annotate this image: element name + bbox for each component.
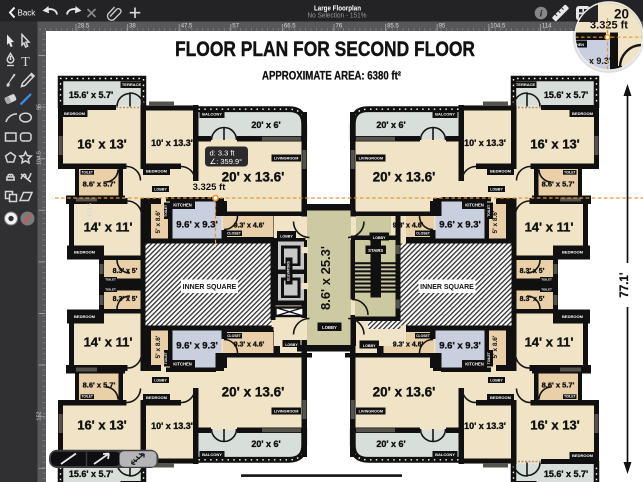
svg-text:5' x 8.6': 5' x 8.6' (492, 210, 499, 233)
svg-text:95: 95 (37, 104, 43, 110)
svg-text:14' x 11': 14' x 11' (525, 335, 574, 350)
svg-text:Large Floorplan: Large Floorplan (314, 4, 361, 13)
svg-text:BEDROOM: BEDROOM (572, 453, 594, 458)
svg-text:LOBBY: LOBBY (280, 234, 293, 238)
svg-text:15.6' x 5.7': 15.6' x 5.7' (69, 469, 113, 479)
svg-text:LOBBY: LOBBY (363, 344, 376, 348)
svg-text:123.5: 123.5 (88, 203, 94, 217)
svg-text:BALCONY: BALCONY (202, 112, 222, 117)
svg-text:5' x 8.6': 5' x 8.6' (155, 335, 162, 358)
svg-text:76: 76 (336, 24, 343, 30)
svg-text:TOILET: TOILET (82, 171, 93, 175)
svg-text:47.5: 47.5 (181, 24, 193, 30)
svg-text:TOILET: TOILET (105, 278, 116, 282)
svg-text:28.5: 28.5 (78, 24, 90, 30)
svg-text:BALCONY: BALCONY (202, 452, 222, 457)
svg-text:BEDROOM: BEDROOM (562, 314, 584, 319)
svg-text:16' x 13': 16' x 13' (530, 137, 580, 152)
svg-text:8.6' x 5.7': 8.6' x 5.7' (542, 381, 575, 390)
svg-text:TOILET: TOILET (164, 204, 168, 217)
svg-text:T: T (21, 55, 30, 70)
svg-text:BEDROOM: BEDROOM (572, 111, 594, 116)
svg-text:104.5: 104.5 (37, 151, 43, 165)
svg-text:BEDROOM: BEDROOM (562, 250, 584, 255)
svg-text:LIVINGROOM: LIVINGROOM (359, 409, 383, 413)
svg-text:10' x 13.3': 10' x 13.3' (464, 138, 506, 148)
svg-text:8.6' x 5.7': 8.6' x 5.7' (83, 381, 116, 390)
svg-text:8.3' x 5': 8.3' x 5' (113, 268, 138, 275)
svg-text:TOILET: TOILET (487, 204, 491, 217)
svg-text:14' x 11': 14' x 11' (84, 220, 133, 235)
svg-text:TOILET: TOILET (541, 288, 552, 292)
svg-text:8.3' x 5': 8.3' x 5' (520, 268, 545, 275)
svg-text:TOILET: TOILET (105, 288, 116, 292)
svg-text:9.6' x 9.3': 9.6' x 9.3' (439, 340, 481, 351)
svg-text:INNER SQUARE: INNER SQUARE (420, 284, 474, 291)
svg-text:CLOSET: CLOSET (227, 334, 242, 338)
svg-text:85.5: 85.5 (387, 24, 399, 30)
svg-text:16' x 13': 16' x 13' (77, 418, 127, 433)
svg-text:20' x 6': 20' x 6' (376, 120, 405, 130)
svg-text:KITCHEN: KITCHEN (173, 362, 192, 367)
svg-text:9.6' x 9.3': 9.6' x 9.3' (176, 340, 218, 351)
svg-text:20' x 13.6': 20' x 13.6' (222, 170, 285, 185)
svg-text:LOBBY: LOBBY (285, 343, 298, 347)
svg-text:BEDROOM: BEDROOM (490, 169, 512, 174)
svg-text:∠: 359.9°: ∠: 359.9° (210, 157, 243, 166)
svg-text:CLOSET: CLOSET (416, 334, 431, 338)
svg-text:104.5: 104.5 (490, 24, 506, 30)
svg-text:8.6' x 25.3': 8.6' x 25.3' (318, 246, 333, 310)
svg-text:9.6' x 9.3': 9.6' x 9.3' (439, 219, 481, 230)
svg-text:LOBBY: LOBBY (322, 325, 337, 330)
svg-text:114: 114 (542, 24, 552, 30)
svg-text:TOILET: TOILET (564, 171, 575, 175)
svg-text:9.3' x 4.6': 9.3' x 4.6' (393, 341, 424, 348)
svg-text:57: 57 (232, 24, 239, 30)
svg-text:14' x 11': 14' x 11' (525, 220, 574, 235)
svg-text:BEDROOM: BEDROOM (146, 169, 168, 174)
svg-text:8.6' x 5.7': 8.6' x 5.7' (542, 180, 575, 189)
svg-text:3.325 ft: 3.325 ft (590, 20, 628, 32)
svg-text:10' x 13.3': 10' x 13.3' (151, 421, 193, 431)
svg-text:KITCHEN: KITCHEN (173, 202, 192, 207)
svg-text:9.3' x 4.6': 9.3' x 4.6' (234, 222, 265, 229)
svg-text:ELEVATORS: ELEVATORS (286, 260, 290, 280)
svg-text:10' x 13.3': 10' x 13.3' (151, 138, 193, 148)
svg-text:Back: Back (18, 9, 37, 18)
svg-text:152: 152 (37, 411, 43, 420)
svg-text:LIVINGROOM: LIVINGROOM (274, 156, 298, 160)
svg-text:15.6' x 5.7': 15.6' x 5.7' (69, 90, 113, 100)
svg-text:5' x 8.6': 5' x 8.6' (155, 210, 162, 233)
svg-text:9.3' x 4.6': 9.3' x 4.6' (393, 222, 424, 229)
svg-text:TOILET: TOILET (487, 351, 491, 364)
svg-text:No Selection - 151%: No Selection - 151% (308, 13, 367, 20)
svg-text:CLOSET: CLOSET (227, 231, 242, 235)
svg-text:BALCONY: BALCONY (435, 112, 455, 117)
svg-text:FLOOR PLAN FOR SECOND FLOOR: FLOOR PLAN FOR SECOND FLOOR (175, 38, 475, 61)
svg-text:15.6' x 5.7': 15.6' x 5.7' (544, 469, 588, 479)
svg-text:20' x 13.6': 20' x 13.6' (373, 170, 436, 185)
svg-text:14' x 11': 14' x 11' (84, 335, 133, 350)
svg-text:BEDROOM: BEDROOM (74, 250, 96, 255)
svg-text:16' x 13': 16' x 13' (77, 137, 127, 152)
svg-text:LOBBY: LOBBY (490, 187, 503, 191)
svg-text:77.1': 77.1' (619, 272, 631, 297)
svg-text:KITCHEN: KITCHEN (465, 202, 484, 207)
svg-text:STAIRS: STAIRS (368, 248, 383, 253)
svg-text:BALCONY: BALCONY (435, 452, 455, 457)
svg-text:INNER SQUARE: INNER SQUARE (183, 284, 237, 291)
svg-text:TOILET: TOILET (541, 278, 552, 282)
svg-text:LOBBY: LOBBY (154, 378, 167, 382)
svg-text:5' x 8.6': 5' x 8.6' (492, 335, 499, 358)
svg-text:KITCHEN: KITCHEN (465, 362, 484, 367)
svg-text:TOILET: TOILET (82, 395, 93, 399)
svg-text:9.6' x 9.3': 9.6' x 9.3' (176, 219, 218, 230)
svg-text:BEDROOM: BEDROOM (64, 111, 86, 116)
svg-text:20' x 13.6': 20' x 13.6' (373, 385, 436, 400)
svg-text:66.5: 66.5 (284, 24, 296, 30)
svg-text:LOBBY: LOBBY (373, 236, 386, 240)
svg-text:LOBBY: LOBBY (154, 187, 167, 191)
svg-text:CLOSET: CLOSET (416, 231, 431, 235)
svg-text:95: 95 (439, 24, 446, 30)
svg-text:TERRACE: TERRACE (122, 82, 142, 87)
svg-text:10' x 13.3': 10' x 13.3' (464, 421, 506, 431)
svg-text:TERRACE: TERRACE (516, 82, 536, 87)
svg-text:20' x 6': 20' x 6' (376, 439, 405, 449)
svg-text:20' x 6': 20' x 6' (251, 439, 280, 449)
svg-text:LIVINGROOM: LIVINGROOM (359, 156, 383, 160)
svg-text:15.6' x 5.7': 15.6' x 5.7' (544, 90, 588, 100)
svg-text:LOBBY: LOBBY (490, 378, 503, 382)
svg-text:BEDROOM: BEDROOM (74, 314, 96, 319)
svg-text:APPROXIMATE AREA: 6380 ft²: APPROXIMATE AREA: 6380 ft² (262, 69, 401, 83)
svg-text:TOILET: TOILET (564, 395, 575, 399)
svg-text:8.3' x 5': 8.3' x 5' (113, 296, 138, 303)
svg-text:8.3' x 5': 8.3' x 5' (520, 296, 545, 303)
svg-text:LIVINGROOM: LIVINGROOM (274, 409, 298, 413)
svg-text:BEDROOM: BEDROOM (146, 395, 168, 400)
svg-text:3.325 ft: 3.325 ft (193, 182, 227, 193)
svg-text:9.3' x 4.6': 9.3' x 4.6' (234, 341, 265, 348)
svg-text:38: 38 (129, 24, 136, 30)
svg-text:BEDROOM: BEDROOM (490, 395, 512, 400)
svg-text:20' x 6': 20' x 6' (251, 120, 280, 130)
svg-text:16' x 13': 16' x 13' (530, 418, 580, 433)
svg-text:8.6' x 5.7': 8.6' x 5.7' (83, 180, 116, 189)
svg-text:TOILET: TOILET (164, 351, 168, 364)
svg-text:20' x 13.6': 20' x 13.6' (222, 385, 285, 400)
